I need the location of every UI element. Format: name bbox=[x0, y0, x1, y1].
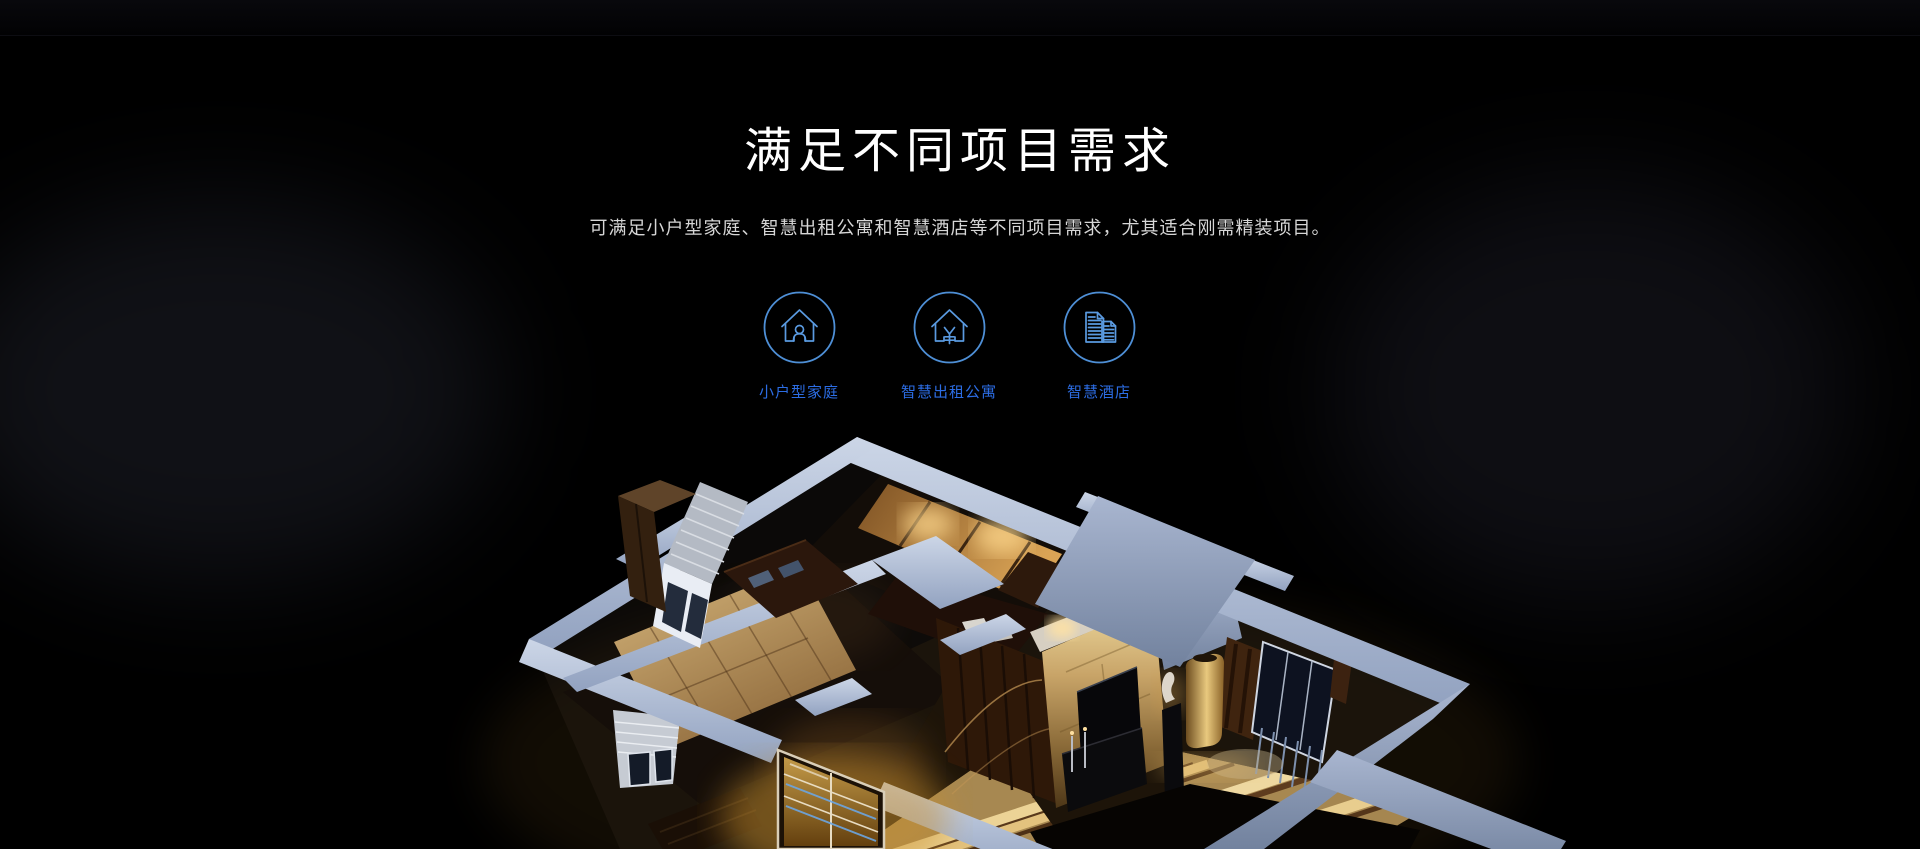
family-home-icon bbox=[763, 291, 836, 364]
use-case-item-hotel: 智慧酒店 bbox=[1024, 291, 1174, 402]
use-case-label: 智慧酒店 bbox=[1067, 381, 1131, 402]
top-nav-bar bbox=[0, 0, 1920, 36]
use-case-label: 智慧出租公寓 bbox=[901, 381, 997, 402]
hotel-icon bbox=[1063, 291, 1136, 364]
apartment-3d-render bbox=[0, 432, 1920, 849]
section-subtitle: 可满足小户型家庭、智慧出租公寓和智慧酒店等不同项目需求，尤其适合刚需精装项目。 bbox=[0, 214, 1920, 243]
rental-apartment-icon bbox=[913, 291, 986, 364]
section-title: 满足不同项目需求 bbox=[0, 124, 1920, 179]
use-case-item-family: 小户型家庭 bbox=[724, 291, 874, 402]
use-case-label: 小户型家庭 bbox=[759, 381, 839, 402]
landing-section: 满足不同项目需求 可满足小户型家庭、智慧出租公寓和智慧酒店等不同项目需求，尤其适… bbox=[0, 0, 1920, 849]
use-case-list: 小户型家庭 智慧出租公寓 bbox=[0, 291, 1909, 402]
use-case-item-rental-apartment: 智慧出租公寓 bbox=[874, 291, 1024, 402]
